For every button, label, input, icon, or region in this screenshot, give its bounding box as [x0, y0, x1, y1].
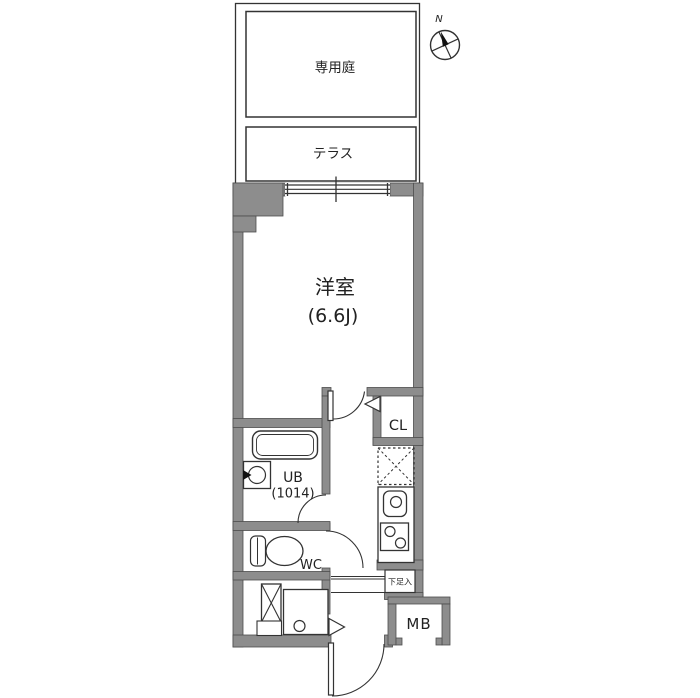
- wall-segment: [233, 419, 330, 428]
- wall-pillar: [233, 183, 283, 216]
- meter-box-wall: [388, 597, 450, 604]
- laundry: [257, 584, 345, 636]
- entrance-door-leaf: [329, 643, 334, 695]
- shoe-box-label: 下足入: [388, 578, 412, 587]
- main-room-label: 洋室: [315, 275, 355, 299]
- compass-north-label: N: [435, 14, 443, 25]
- room-door-arc: [333, 392, 365, 420]
- room-door-leaf: [328, 391, 333, 421]
- closet-label: CL: [389, 418, 407, 434]
- entrance-door-arc: [332, 644, 384, 696]
- compass-needle: [441, 32, 449, 47]
- bath: UB (1014): [243, 431, 326, 523]
- wall-pillar: [233, 216, 256, 232]
- floorplan-page: 専用庭 テラス N: [0, 0, 700, 698]
- main-room: 洋室 (6.6J): [308, 275, 365, 421]
- entrance: 下足入: [329, 570, 416, 696]
- washer-pan: [284, 590, 329, 635]
- meter-box-wall: [388, 604, 396, 645]
- meter-box-wall: [436, 638, 442, 645]
- garden-label: 専用庭: [315, 59, 356, 76]
- compass-icon: N: [431, 14, 460, 60]
- wall-segment: [233, 635, 331, 647]
- toilet-bowl: [266, 537, 303, 566]
- wall-segment: [367, 388, 423, 397]
- kitchen: [378, 448, 414, 563]
- wall-segment: [373, 438, 423, 446]
- main-room-size: (6.6J): [308, 305, 359, 327]
- laundry-step: [257, 621, 282, 636]
- bath-size: (1014): [271, 487, 314, 502]
- closet-door-mark: [365, 397, 380, 412]
- outdoor-area: 専用庭 テラス: [236, 4, 420, 184]
- laundry-door-mark: [329, 619, 345, 636]
- bathtub: [253, 431, 318, 459]
- toilet-label: WC: [300, 558, 322, 573]
- wall-segment: [233, 522, 330, 531]
- meter-box-wall: [396, 638, 402, 645]
- bath-label: UB: [283, 470, 303, 486]
- meter-box-wall: [442, 604, 450, 645]
- meter-box-label: MB: [406, 615, 431, 633]
- meter-box: MB: [406, 615, 431, 633]
- floorplan-svg: 専用庭 テラス N: [0, 0, 700, 698]
- closet: CL: [365, 397, 407, 435]
- toilet: WC: [251, 531, 364, 573]
- refrigerator-cross: [378, 448, 414, 485]
- toilet-door-arc: [326, 531, 363, 568]
- terrace-label: テラス: [313, 146, 353, 162]
- walls: [233, 183, 450, 647]
